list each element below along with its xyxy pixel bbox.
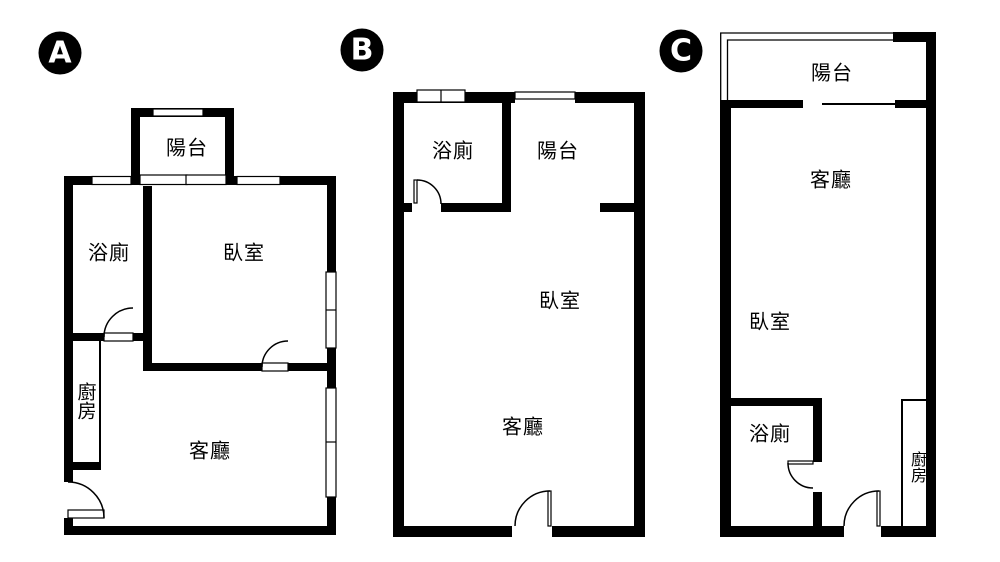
plan-b-entrance-opening [512,525,552,538]
plan-c-kitchen-label: 廚房 [909,451,925,483]
plan-a-bathroom-label: 浴廁 [88,237,130,266]
plan-b-bathroom-balcony-divider-wall [502,92,511,205]
plan-a-bathroom-window [92,177,131,185]
plan-c-bathroom-door-arc [788,463,813,488]
plan-b-bathroom-door-opening [412,202,441,213]
plan-b-bathroom-bottom-wall [393,203,511,212]
plan-a-balcony-window [153,109,203,116]
plan-c-bathroom-right-wall-lower [813,492,822,534]
plan-b-living-label: 客廳 [502,411,544,440]
plan-c-bottom-wall [720,526,936,537]
plan-c-bathroom-right-wall-upper [813,398,822,462]
plan-b-bedroom-label: 臥室 [539,285,581,314]
plan-c-balcony-bottom-wall-left [720,100,803,108]
plan-c-left-wall [720,100,731,537]
plan-a-bathroom-door-leaf [104,333,133,341]
plan-c-entrance-door-arc [844,491,879,526]
plan-c-entrance-door-leaf [877,491,880,526]
plan-c-bathroom-door-leaf [788,461,813,464]
plan-b-balcony-label: 陽台 [537,135,579,164]
plan-c-entrance-opening [844,525,881,538]
plan-a-bedroom-door-leaf [262,363,288,371]
plan-b-left-wall [393,92,404,537]
plan-c-kitchen-partition-vertical [901,399,903,527]
plan-a-kitchen-partition-line [99,341,101,462]
plan-a [63,108,336,535]
plan-a-bedroom-top-window [237,177,280,185]
plan-b-balcony-window [515,92,575,99]
plan-b-bathroom-door-arc [417,180,441,204]
plan-a-balcony-sliding-door-right-panel [186,175,226,185]
plan-b-bathroom-door-leaf [414,180,417,203]
plan-a-kitchen-bottom-wall [64,462,101,470]
plan-b [393,90,645,538]
plan-c-badge: C [660,30,703,73]
plan-a-bedroom-bottom-wall [143,363,336,371]
plan-b-entrance-door-arc [515,491,550,526]
plan-b-badge: B [341,29,384,72]
plan-a-bathroom-bedroom-divider-wall [143,176,152,371]
plan-b-bathroom-label: 浴廁 [432,135,474,164]
plan-c-living-label: 客廳 [810,164,852,193]
plan-c-bedroom-label: 臥室 [749,306,791,335]
plan-c-bathroom-top-wall [720,398,822,406]
plan-c-kitchen-partition-top [901,399,926,401]
plan-a-balcony-right-wall [225,108,234,185]
plan-a-balcony-label: 陽台 [166,132,208,161]
plan-a-badge: A [39,32,82,75]
plan-c-balcony-label: 陽台 [811,57,853,86]
plan-a-bottom-wall [64,526,336,535]
plan-b-right-wall [634,92,645,537]
plan-a-balcony-sliding-door-left-panel [140,175,187,185]
plan-a-bedroom-label: 臥室 [223,237,265,266]
plan-b-balcony-bottom-wall-stub [600,203,645,212]
plan-c-balcony-bottom-wall-right [895,100,936,108]
plan-a-balcony-left-wall [131,108,140,185]
plan-b-entrance-door-leaf [548,491,551,526]
plan-c [720,32,936,538]
plan-c-balcony-sliding-window-line [822,103,895,105]
plan-a-kitchen-label: 廚房 [76,382,95,420]
floor-plan-canvas: A B C 陽台 浴廁 臥室 廚房 客廳 浴廁 陽台 臥室 客廳 陽台 客廳 臥… [0,0,1000,562]
plan-a-living-label: 客廳 [189,435,231,464]
plan-a-entrance-door-leaf [68,510,104,518]
plan-a-left-wall [64,176,73,535]
plan-c-bathroom-label: 浴廁 [749,418,791,447]
